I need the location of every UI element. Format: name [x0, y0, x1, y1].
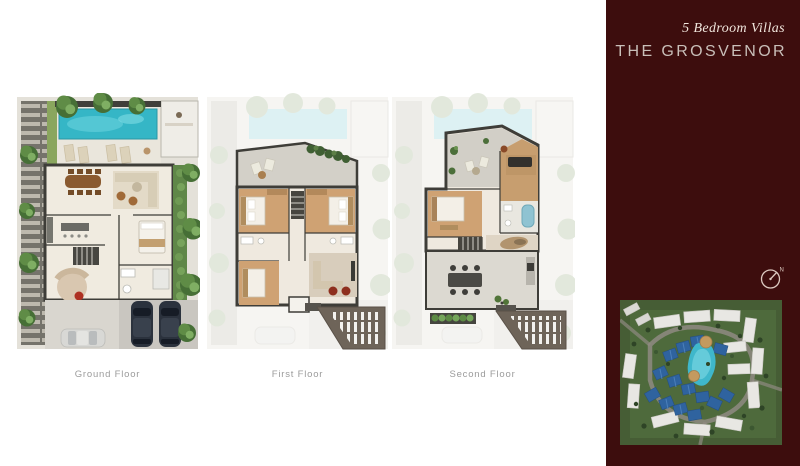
master-bedroom [428, 191, 482, 237]
second-floor-plan-image [390, 93, 575, 353]
family-room [500, 139, 538, 201]
entry-court [161, 101, 198, 157]
dining-table [65, 169, 101, 195]
project-title: THE GROSVENOR [615, 43, 787, 61]
ground-floor-plan [15, 93, 200, 353]
parked-car-light [61, 329, 105, 347]
bedroom-1-bed [241, 197, 265, 225]
bedroom-3-bed [239, 261, 279, 305]
floor-label-first: First Floor [205, 369, 390, 380]
floor-label-second: Second Floor [390, 369, 575, 380]
stairs [458, 237, 482, 250]
aerial-site-thumbnail [620, 300, 782, 445]
stairs [291, 191, 304, 219]
page: Ground Floor First Floor Second Floor 5 … [0, 0, 800, 466]
guest-bedroom [139, 221, 165, 253]
stairs [73, 247, 99, 265]
bathroom [500, 201, 538, 233]
dressing-room [486, 235, 538, 251]
floor-label-ground: Ground Floor [15, 369, 200, 380]
roof-terrace [426, 251, 538, 309]
villa-type-subtitle: 5 Bedroom Villas [682, 21, 785, 37]
round-pavilion-2 [689, 371, 700, 382]
second-floor-plan [390, 93, 575, 353]
parked-car-dark-1 [131, 301, 153, 347]
planter-box [430, 313, 476, 324]
first-floor-plan-image [205, 93, 390, 353]
sidebar: 5 Bedroom Villas THE GROSVENOR N [606, 0, 800, 466]
family-room [309, 253, 357, 297]
round-pavilion-1 [700, 336, 712, 348]
side-walkway [21, 101, 47, 345]
parked-car-dark-2 [159, 301, 181, 347]
living-room-sofa [113, 171, 159, 209]
compass-icon: N [758, 264, 786, 292]
compass-north-label: N [780, 268, 784, 274]
aerial-site-image [620, 300, 782, 445]
bedroom-2-bed [329, 197, 353, 225]
ground-floor-plan-image [15, 93, 200, 353]
first-floor-plan [205, 93, 390, 353]
majlis-lounge [57, 271, 87, 302]
